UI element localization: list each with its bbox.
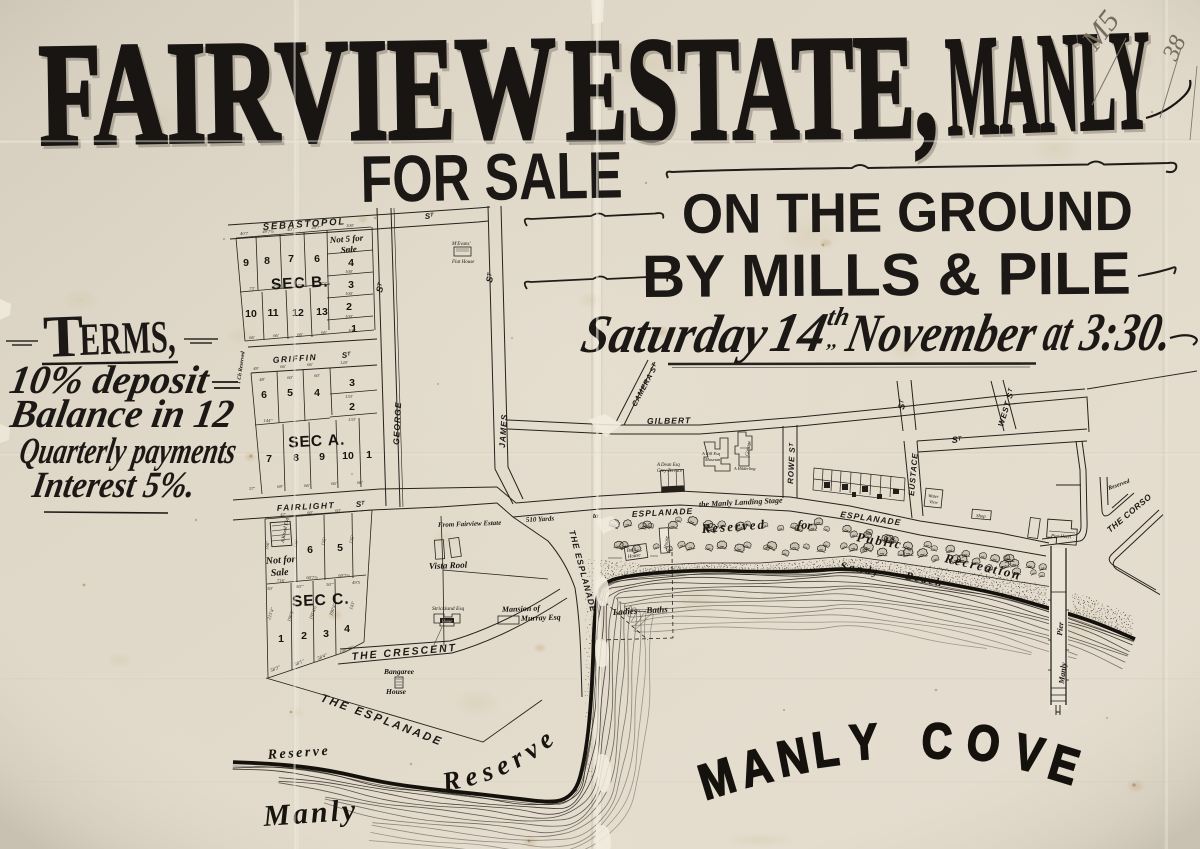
svg-text:49′7′: 49′7′ [312,225,322,230]
svg-text:13: 13 [316,306,328,318]
svg-text:100′: 100′ [346,223,355,228]
svg-text:49′5: 49′5 [352,580,361,585]
svg-text:Not for: Not for [264,554,296,567]
svg-text:10: 10 [245,308,257,320]
svg-text:73′: 73′ [249,286,256,291]
svg-text:SEC A.: SEC A. [288,432,346,452]
svg-text:133′: 133′ [348,417,357,422]
svg-text:Bangaree: Bangaree [383,667,415,676]
svg-text:C: C [920,712,953,770]
svg-text:Vista Rool: Vista Rool [429,560,468,571]
svg-text:66′: 66′ [249,335,256,340]
svg-text:60′7½: 60′7½ [338,573,350,578]
svg-text:Grey Terrace: Grey Terrace [657,469,683,474]
svg-text:60′: 60′ [335,508,342,513]
svg-text:50′″: 50′″ [326,582,334,587]
svg-text:Manly: Manly [261,793,359,833]
svg-text:2: 2 [349,401,355,413]
svg-text:6: 6 [314,253,320,265]
svg-text:100′: 100′ [345,291,354,296]
svg-text:5: 5 [337,542,343,554]
svg-text:for: for [797,517,813,532]
svg-text:Balance in 12: Balance in 12 [6,391,237,436]
svg-text:100′: 100′ [345,314,354,319]
svg-text:4: 4 [348,257,354,269]
svg-text:3: 3 [348,279,354,291]
svg-text:4: 4 [344,623,350,635]
svg-text:48′: 48′ [259,377,266,382]
svg-text:A Dean Esq: A Dean Esq [656,463,680,468]
svg-text:M′Evans′: M′Evans′ [451,242,471,247]
svg-text:133′: 133′ [345,394,354,399]
svg-text:42′: 42′ [280,512,287,517]
svg-text:10: 10 [342,450,354,462]
svg-text:50′: 50′ [267,586,274,591]
svg-text:50′″: 50′″ [296,584,304,589]
svg-text:GILBERT: GILBERT [647,415,691,426]
svg-text:66′: 66′ [273,333,280,338]
svg-text:66′: 66′ [331,481,338,486]
svg-text:A Hilderling: A Hilderling [733,466,756,471]
svg-text:510 Yards: 510 Yards [526,515,555,524]
svg-text:8: 8 [264,255,270,267]
svg-text:66′: 66′ [357,480,364,485]
svg-text:57′: 57′ [249,486,256,491]
svg-text:60′: 60′ [314,373,321,378]
svg-text:7: 7 [288,253,294,265]
svg-text:60′: 60′ [287,375,294,380]
svg-text:Flat House: Flat House [451,260,475,265]
svg-text:FOR SALE: FOR SALE [360,137,623,216]
svg-text:100′: 100′ [345,247,354,252]
svg-text:6: 6 [261,389,267,401]
svg-text:House: House [385,687,407,696]
svg-text:73′: 73′ [297,283,304,288]
svg-text:2: 2 [301,630,307,642]
svg-text:3:30.: 3:30. [1075,302,1179,362]
svg-text:66′: 66′ [321,330,328,335]
svg-text:BY MILLS & PILE: BY MILLS & PILE [642,240,1131,310]
svg-text:Saturday: Saturday [576,304,774,364]
svg-text:40′7: 40′7 [240,231,249,236]
svg-text:ON THE GROUND: ON THE GROUND [682,179,1133,245]
svg-text:5: 5 [287,387,293,399]
svg-text:69′: 69′ [277,484,284,489]
svg-text:9: 9 [243,257,249,269]
svg-text:House: House [441,619,452,624]
svg-text:66′: 66′ [297,332,304,337]
svg-text:716′: 716′ [277,578,286,583]
svg-text:Strickland Esq: Strickland Esq [432,606,464,612]
svg-text:Shop: Shop [976,514,987,520]
svg-text:144′′: 144′′ [264,418,274,423]
svg-text:49′7½: 49′7½ [262,229,274,234]
svg-text:120′: 120′ [340,360,349,365]
svg-text:Pier: Pier [1055,621,1065,637]
svg-text:60′7½: 60′7½ [306,575,318,580]
svg-text:Murray Esq: Murray Esq [520,613,561,623]
svg-text:Mansion of: Mansion of [501,604,542,614]
svg-text:3: 3 [323,628,329,640]
svg-text:6: 6 [307,544,313,556]
svg-text:66′: 66′ [280,364,287,369]
svg-text:Museum: Museum [704,457,721,462]
svg-text:66′: 66′ [304,483,311,488]
svg-text:3: 3 [349,377,355,389]
svg-text:Interest 5%.: Interest 5%. [29,465,199,506]
svg-text:A Fill Esq: A Fill Esq [701,451,721,456]
svg-text:73′: 73′ [321,281,328,286]
svg-text:1: 1 [278,633,284,645]
svg-text:November: November [841,303,1043,363]
svg-text:2: 2 [346,301,352,313]
svg-text:60′: 60′ [307,510,314,515]
svg-text:4: 4 [314,387,320,399]
svg-text:49′: 49′ [253,366,260,371]
svg-text:100′: 100′ [345,269,354,274]
svg-text:7: 7 [266,453,272,465]
svg-text:Y: Y [848,713,880,771]
svg-text:1: 1 [366,449,372,461]
svg-text:66′: 66′ [307,362,314,367]
svg-text:View: View [929,499,938,505]
svg-text:106′: 106′ [348,328,357,333]
svg-text:73′: 73′ [273,284,280,289]
svg-text:SEC C.: SEC C. [292,591,350,611]
svg-text:11: 11 [267,307,278,319]
svg-text:9: 9 [319,451,325,463]
